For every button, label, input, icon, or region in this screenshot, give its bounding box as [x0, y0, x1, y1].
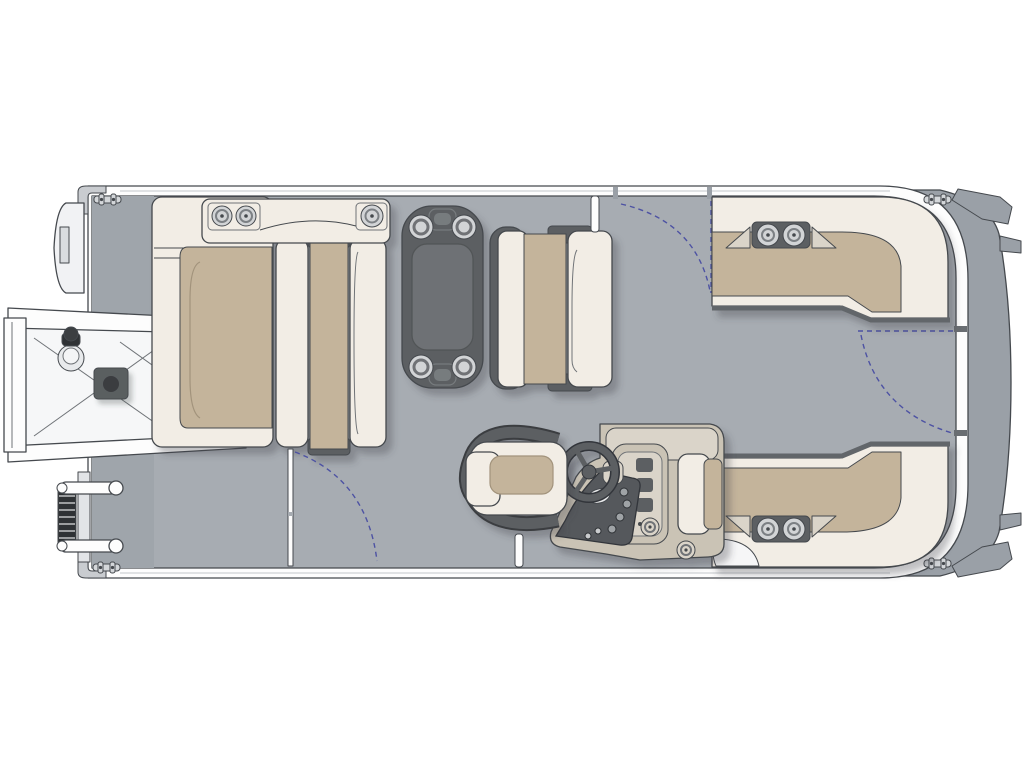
switch-dot	[595, 528, 601, 534]
bow-facing-bench	[276, 231, 386, 455]
gate-tick	[707, 187, 712, 199]
ladder-rail-knob	[109, 539, 123, 553]
vent-slat	[636, 458, 653, 472]
cup-holder-icon	[783, 224, 805, 246]
gauge-dial	[608, 525, 616, 533]
gate-door-open	[288, 449, 293, 566]
cup-holder-icon	[452, 355, 476, 379]
gate-tick	[954, 430, 967, 436]
gate-tick	[954, 326, 967, 332]
gate-post	[591, 196, 599, 232]
floorplan-canvas	[0, 0, 1024, 768]
pedestal-table	[402, 206, 483, 388]
cup-holder-icon	[409, 215, 433, 239]
switch-dot	[585, 533, 591, 539]
gauge-dial	[623, 500, 631, 508]
gate-tick	[613, 187, 618, 199]
ramp-end-cap	[4, 318, 26, 452]
cup-holder-icon	[641, 518, 659, 536]
seat-cup-holder-plate	[752, 516, 810, 542]
cup-holder-icon	[452, 215, 476, 239]
bow-armrest-console	[202, 199, 390, 243]
cup-holder-icon	[236, 206, 256, 226]
cup-holder-icon	[757, 224, 779, 246]
cleat-icon	[924, 194, 951, 205]
ladder-rail	[60, 540, 116, 552]
ladder-rail	[60, 482, 116, 494]
aft-lounge-top	[712, 197, 950, 320]
helm-console	[550, 424, 724, 560]
cup-holder-icon	[409, 355, 433, 379]
deck-hatch	[94, 368, 128, 399]
bow-gate-hinge	[60, 227, 69, 263]
midship-bench	[490, 226, 612, 391]
cleat-icon	[93, 562, 120, 573]
cleat-icon	[924, 558, 951, 569]
cleat-icon	[94, 194, 121, 205]
gauge-dial	[620, 488, 628, 496]
cup-holder-icon	[757, 518, 779, 540]
chair-cushion	[490, 456, 553, 494]
ladder-rail-knob	[109, 481, 123, 495]
boat-floorplan-svg	[0, 0, 1024, 768]
helm-jump-seat	[678, 454, 722, 534]
cup-holder-icon	[212, 206, 232, 226]
gauge-dial	[616, 513, 624, 521]
deck-post	[515, 534, 523, 567]
bow-seating	[152, 197, 390, 455]
cup-holder-icon	[677, 541, 695, 559]
seat-cup-holder-plate	[752, 222, 810, 248]
captain-chair	[466, 432, 567, 523]
aft-lounge-bottom	[712, 444, 950, 567]
cup-holder-icon	[361, 205, 383, 227]
cup-holder-icon	[783, 518, 805, 540]
